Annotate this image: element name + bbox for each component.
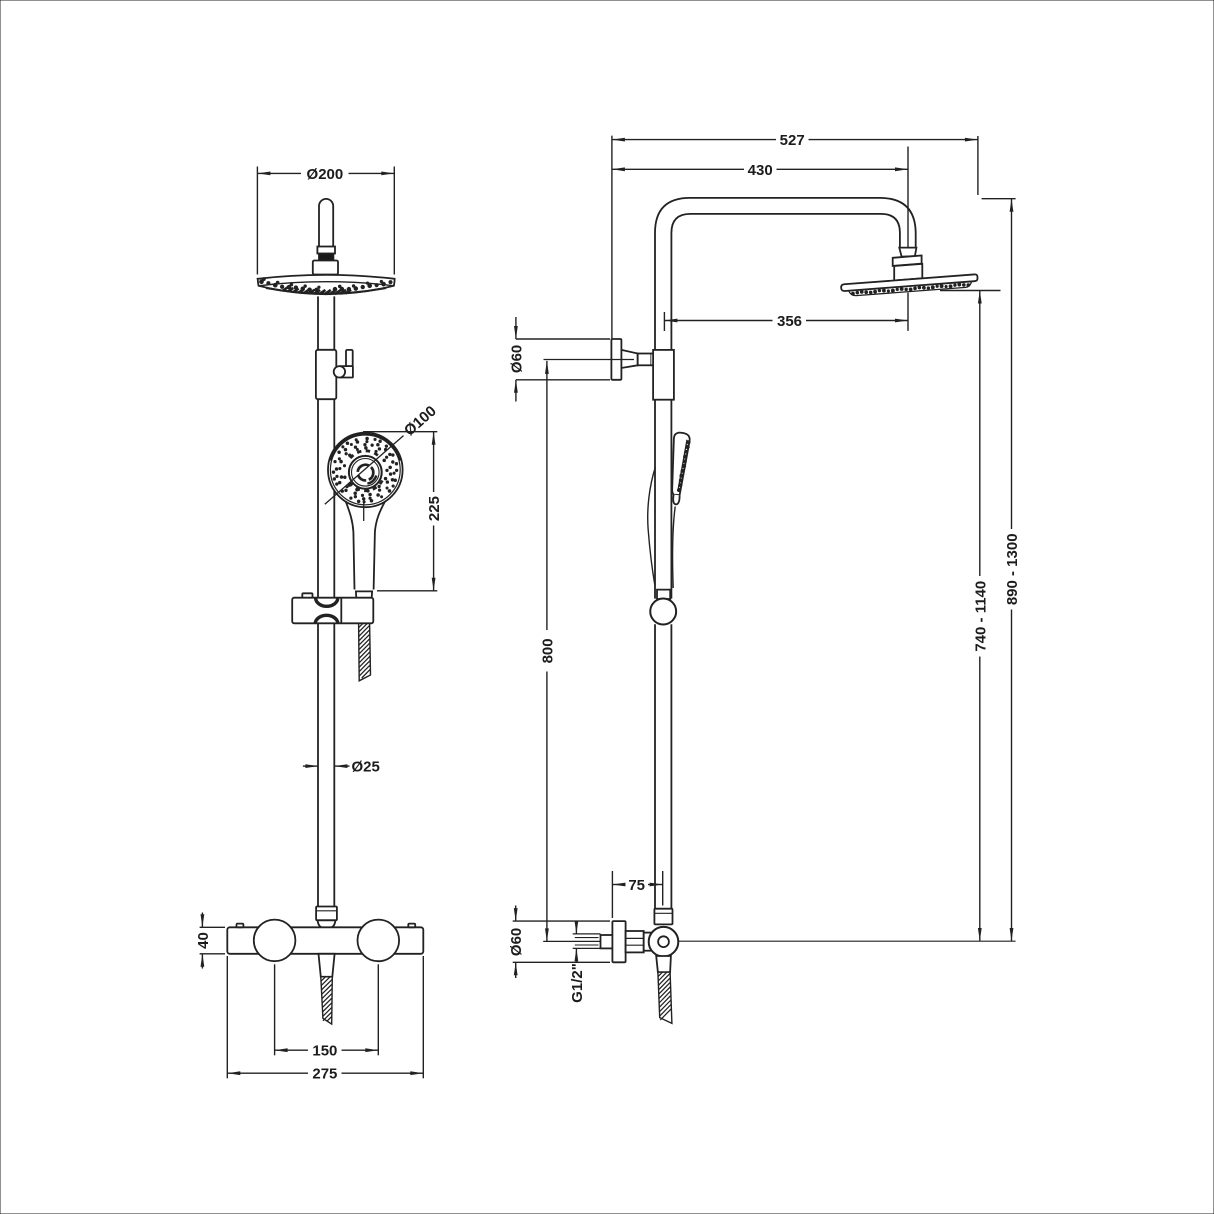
svg-text:800: 800 <box>539 638 556 663</box>
svg-text:890 - 1300: 890 - 1300 <box>1004 533 1021 605</box>
svg-text:40: 40 <box>195 932 212 949</box>
svg-text:G1/2": G1/2" <box>569 963 586 1003</box>
svg-text:275: 275 <box>312 1066 337 1083</box>
svg-text:225: 225 <box>426 496 443 521</box>
svg-text:150: 150 <box>312 1043 337 1060</box>
svg-text:Ø60: Ø60 <box>508 345 525 373</box>
svg-text:430: 430 <box>748 162 773 179</box>
svg-text:356: 356 <box>777 313 802 330</box>
svg-text:Ø25: Ø25 <box>352 759 380 776</box>
svg-text:527: 527 <box>780 132 805 149</box>
svg-text:75: 75 <box>628 877 645 894</box>
svg-text:Ø200: Ø200 <box>307 166 344 183</box>
svg-text:740 - 1140: 740 - 1140 <box>972 581 989 652</box>
svg-text:Ø60: Ø60 <box>508 928 525 956</box>
